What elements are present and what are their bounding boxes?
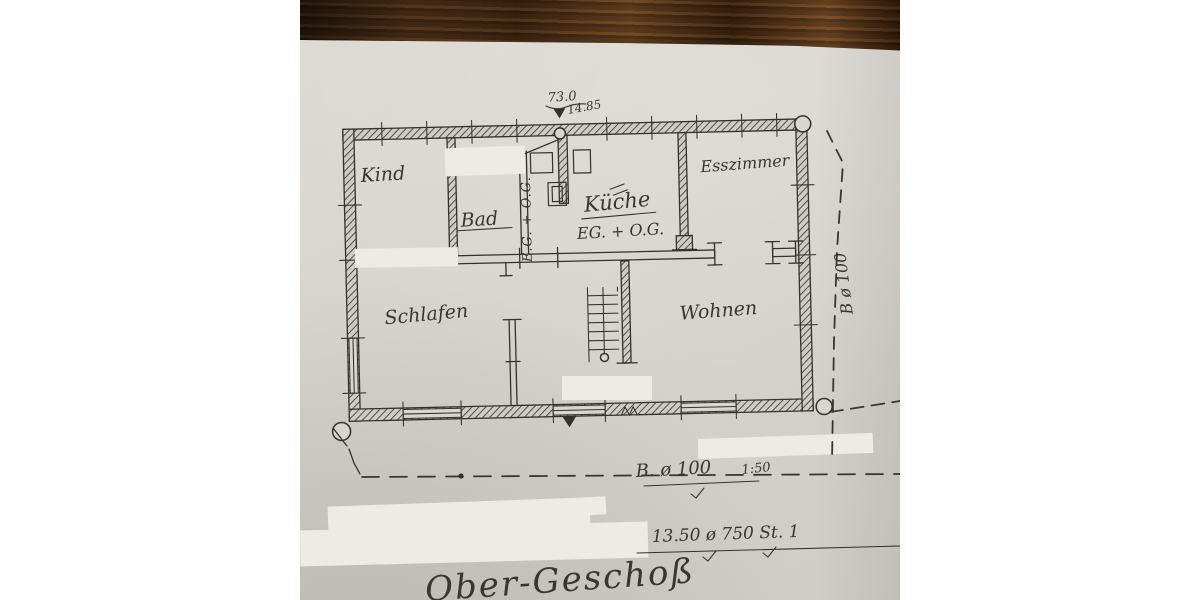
room-label-wohnen: Wohnen (679, 297, 758, 325)
survey-triangle-top (553, 108, 565, 118)
staircase (587, 287, 619, 362)
label-kueche-floor: EG. + O.G. (575, 219, 664, 243)
dim-note: 13.50 ø 750 St. 1 (651, 522, 799, 547)
floor-plan-drawing: Kind Bad Küche EG. + O.G. E.G. + O.G. Es… (300, 0, 900, 600)
dim-scale: 1:50 (741, 460, 772, 478)
room-label-kueche: Küche (582, 187, 651, 217)
survey-triangle-bottom (562, 416, 576, 427)
room-label-esszimmer: Esszimmer (699, 150, 792, 176)
label-shaft-floor: E.G. + O.G. (519, 176, 536, 263)
dim-bottom: B. ø 100 (634, 457, 712, 482)
room-label-bad: Bad (459, 208, 499, 232)
room-label-schlafen: Schlafen (384, 300, 469, 330)
room-label-kind: Kind (359, 162, 406, 187)
floor-plan-photo: Kind Bad Küche EG. + O.G. E.G. + O.G. Es… (300, 0, 900, 600)
